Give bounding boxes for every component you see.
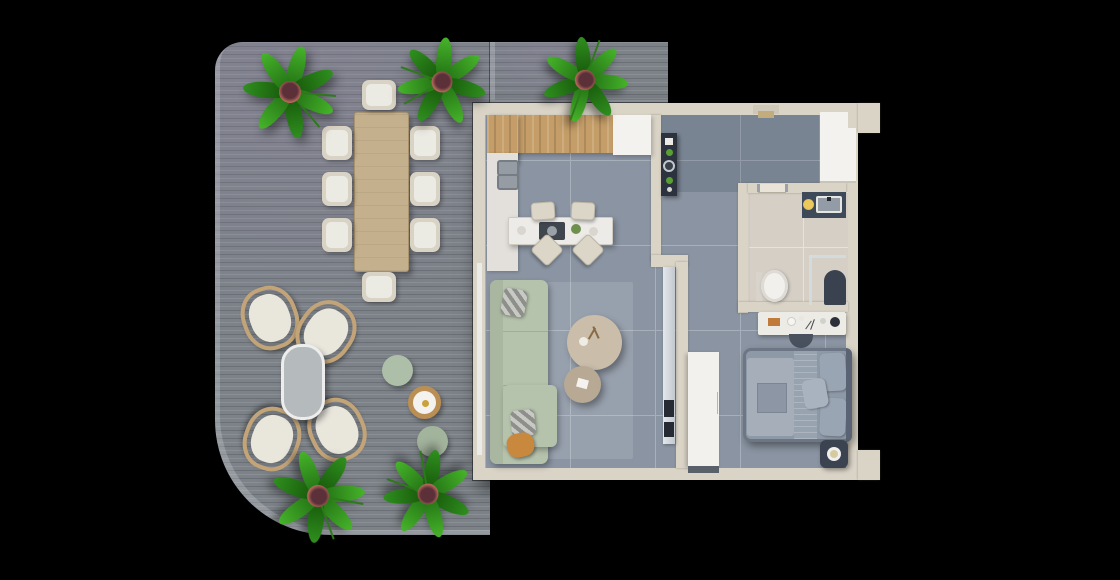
dark-tray	[830, 317, 840, 327]
nightstand	[820, 440, 848, 468]
dining-chair	[322, 126, 352, 160]
vase	[579, 337, 588, 346]
cosmetics-jar	[820, 318, 826, 324]
entry-closet-extension	[846, 128, 856, 183]
blanket-fold	[757, 383, 787, 413]
dining-chair	[362, 272, 396, 302]
lamp-shade-center	[830, 450, 838, 458]
bar-stool	[571, 201, 596, 220]
entry-closet	[820, 112, 848, 183]
sofa-seam	[503, 331, 548, 332]
decor-item	[667, 187, 672, 192]
island-plant-decor	[571, 224, 581, 234]
entry-door	[758, 111, 774, 118]
chair-cushion	[366, 276, 392, 298]
lounge-cushion	[243, 289, 297, 348]
rattan-side-table	[408, 386, 441, 419]
chair-cushion	[414, 130, 436, 156]
dining-chair	[410, 172, 440, 206]
wall-living-bedroom	[676, 262, 688, 468]
decor-plate	[663, 160, 675, 172]
kitchen-island	[508, 217, 613, 245]
terrace-glass-door	[477, 263, 482, 455]
plant-pot	[279, 81, 301, 103]
chair-cushion	[366, 84, 392, 106]
pilaster-bottom-right	[858, 450, 880, 480]
bedroom-wardrobe	[688, 352, 719, 466]
chair-cushion	[326, 130, 348, 156]
media-unit	[664, 400, 674, 417]
pouf	[382, 355, 413, 386]
toilet	[761, 270, 788, 302]
bathroom-vanity	[802, 192, 846, 218]
outdoor-coffee-table	[281, 344, 325, 420]
decor-plant	[666, 177, 673, 184]
chair-cushion	[414, 176, 436, 202]
bar-stool	[530, 201, 555, 221]
book-decor	[576, 378, 589, 390]
headboard	[846, 348, 852, 442]
wall-bathroom-left	[738, 183, 748, 313]
kitchen-sink-basin	[497, 174, 519, 190]
tv-console	[663, 267, 675, 444]
dining-chair	[322, 172, 352, 206]
coffee-table-large	[567, 315, 622, 370]
chair-cushion	[326, 222, 348, 248]
wall-kitchen-entry	[651, 115, 661, 262]
apartment-shell	[473, 103, 858, 480]
shower-glass-panel	[809, 255, 846, 258]
dining-chair	[410, 126, 440, 160]
bathroom-sliding-door	[758, 184, 786, 193]
pilaster-top-right	[858, 103, 880, 133]
checkered-pillow	[500, 287, 528, 318]
cosmetics-jar	[788, 318, 795, 325]
floor-plan-scene	[0, 0, 1120, 580]
decor-box	[665, 138, 673, 145]
kitchen-cabinet-white	[613, 115, 651, 155]
decor-plant	[666, 149, 673, 156]
lounge-cushion	[245, 410, 299, 469]
door-cap	[757, 184, 760, 192]
accent-pillow	[801, 377, 830, 410]
entry-decor-console	[661, 133, 677, 196]
shower-mat	[824, 270, 846, 305]
bed-blanket	[747, 358, 794, 436]
cosmetics-box	[768, 318, 780, 326]
media-unit	[664, 422, 674, 437]
washbasin	[816, 196, 842, 213]
dining-chair	[362, 80, 396, 110]
bed	[743, 348, 852, 442]
shower-glass-panel	[809, 255, 812, 305]
door-cap	[785, 184, 788, 192]
wardrobe-handle	[717, 392, 718, 414]
faucet	[827, 197, 831, 201]
dining-chair	[410, 218, 440, 252]
table-lamp	[827, 447, 841, 461]
gold-vessel-sink	[803, 199, 814, 210]
dining-table	[354, 112, 409, 272]
door-threshold	[688, 466, 719, 473]
plate	[517, 226, 526, 235]
chair-cushion	[326, 176, 348, 202]
dressing-table	[758, 312, 846, 335]
coffee-table-small	[564, 366, 601, 403]
dining-chair	[322, 218, 352, 252]
chair-cushion	[414, 222, 436, 248]
cosmetics-jar	[799, 316, 804, 321]
tray-center-dot	[422, 400, 429, 407]
